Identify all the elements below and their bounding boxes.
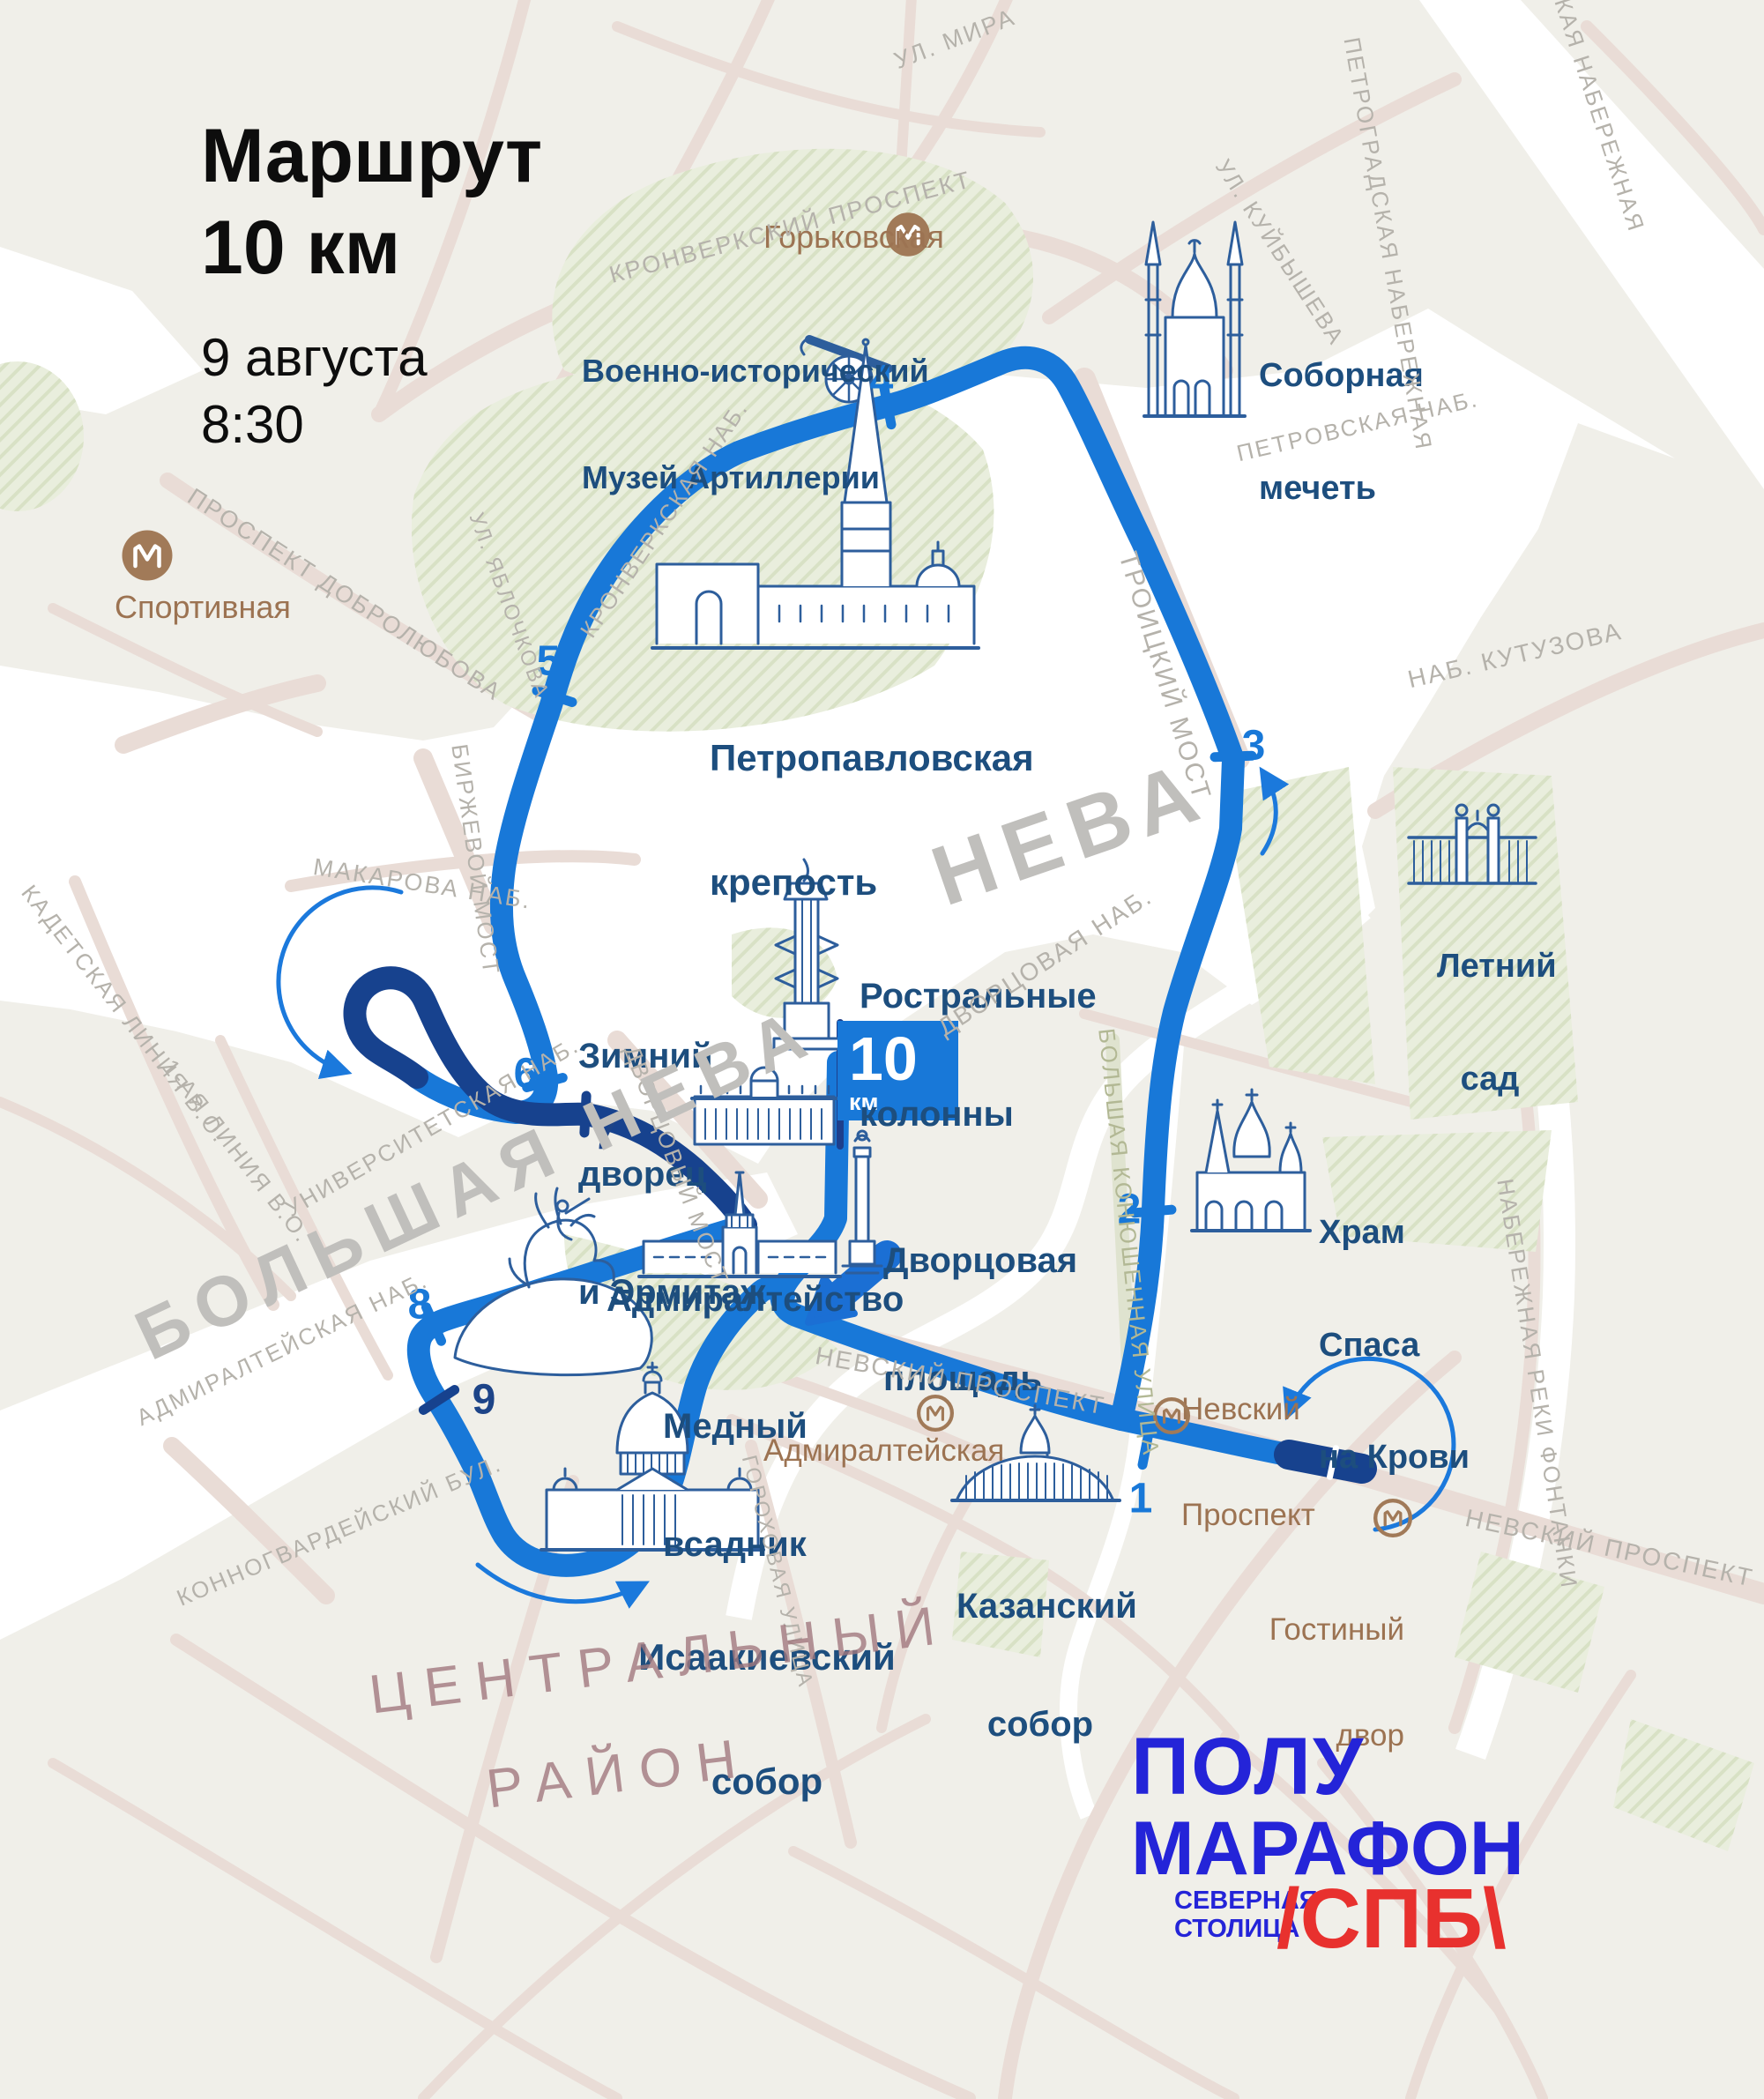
label-savior-on-blood: Храм Спаса на Крови xyxy=(1319,1139,1470,1514)
poster-title-line1: Маршрут xyxy=(201,118,542,194)
metro-label-admiralteyskaya: Адмиралтейская xyxy=(763,1433,1004,1469)
metro-label-nevsky-prospekt: Невский Проспект xyxy=(1181,1321,1315,1569)
label-st-isaac: Исаакиевский собор xyxy=(617,1553,917,1843)
label-kazan-cathedral: Казанский собор xyxy=(956,1507,1124,1784)
km-marker-3: 3 xyxy=(1242,722,1266,770)
km-marker-9: 9 xyxy=(473,1376,496,1425)
label-summer-garden: Летний сад xyxy=(1437,873,1543,1135)
poster-title-line2: 10 км xyxy=(201,210,400,286)
km-marker-1: 1 xyxy=(1129,1475,1153,1523)
label-admiralty: Адмиралтейство xyxy=(607,1280,904,1320)
metro-icon-sportivnaya xyxy=(121,529,174,586)
logo-spb: /СПБ\ xyxy=(1276,1871,1507,1968)
event-date: 9 августа xyxy=(201,331,428,384)
event-time: 8:30 xyxy=(201,398,304,451)
metro-label-sportivnaya: Спортивная xyxy=(115,589,291,625)
metro-icon-admiralteyskaya xyxy=(917,1395,954,1436)
logo-polu: ПОЛУ xyxy=(1131,1721,1365,1813)
route-poster: Маршрут 10 км 9 августа 8:30 10 км 1 2 3… xyxy=(0,0,1764,2099)
metro-icon-gostiny-dvor xyxy=(1373,1499,1412,1542)
